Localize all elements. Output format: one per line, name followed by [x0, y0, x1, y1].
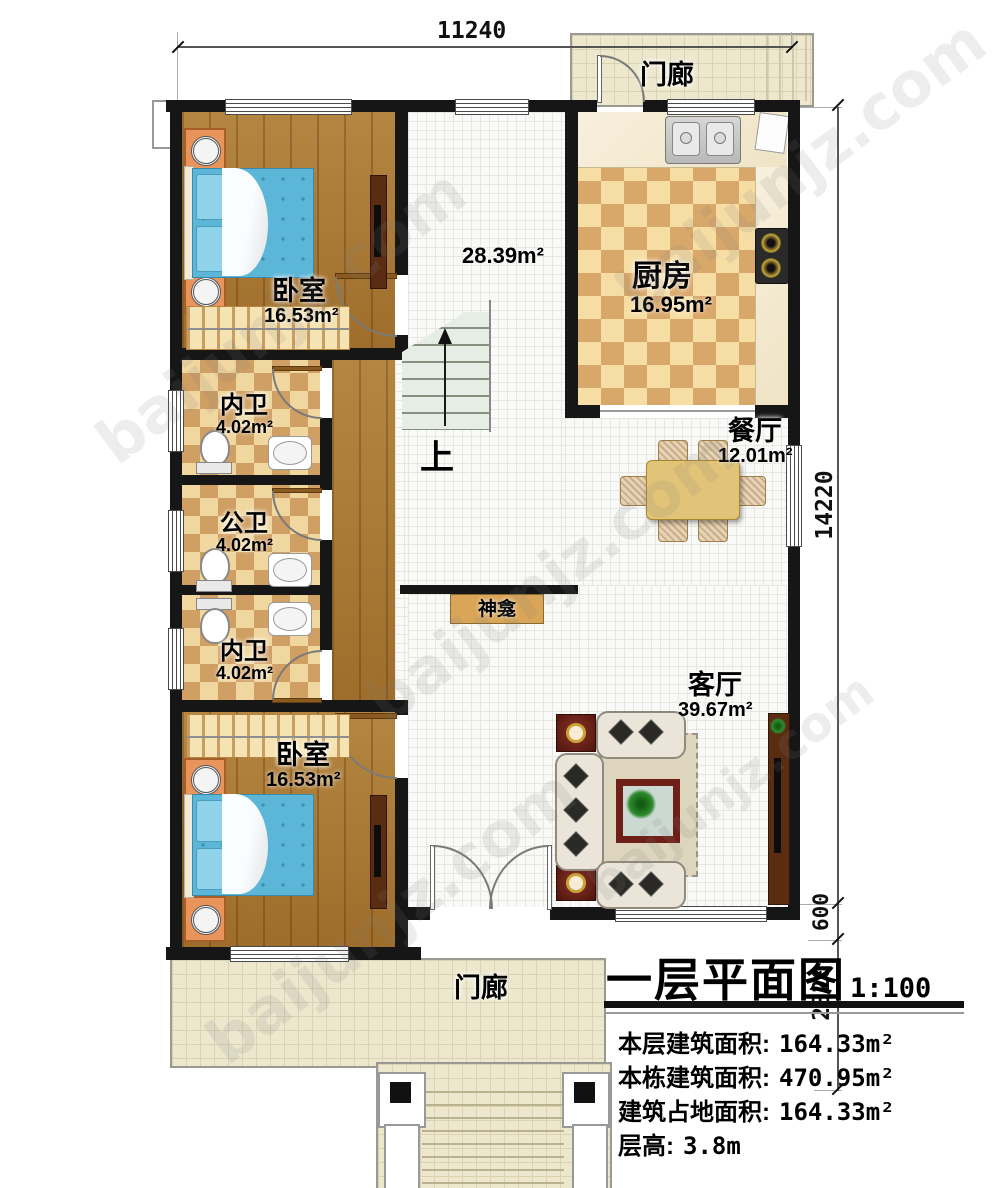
info-label: 本层建筑面积: — [618, 1024, 770, 1059]
entry-column-left-base — [384, 1124, 420, 1188]
wall-segment — [527, 100, 597, 112]
sofa-pillow — [638, 871, 663, 896]
room-label-kitchen: 厨房 — [632, 262, 692, 292]
wall-segment — [320, 540, 332, 650]
wall-segment — [400, 585, 578, 594]
kitchen-corner-unit — [755, 112, 790, 154]
info-value: 3.8m — [683, 1132, 741, 1160]
shrine: 神龛 — [450, 594, 544, 624]
room-area-living: 39.67m² — [678, 700, 753, 720]
toilet-tank — [196, 580, 232, 592]
sofa-pillow — [563, 763, 588, 788]
window — [168, 510, 184, 572]
washbasin-icon — [268, 436, 312, 470]
info-value: 470.95m² — [779, 1064, 895, 1092]
stair-edge — [489, 300, 491, 432]
room-label-bedroom-bottom: 卧室 — [276, 742, 330, 769]
info-value: 164.33m² — [779, 1030, 895, 1058]
burner-icon — [761, 258, 781, 278]
stairs-up-label: 上 — [420, 430, 454, 479]
sofa — [555, 753, 604, 871]
sofa-pillow — [608, 871, 633, 896]
sink-basin-right — [706, 122, 734, 156]
sofa — [596, 861, 686, 909]
lamp-icon — [566, 873, 586, 893]
wall-segment — [643, 100, 667, 112]
bed-pillow — [196, 174, 224, 220]
info-row: 层高: 3.8m — [618, 1126, 741, 1161]
info-label: 建筑占地面积: — [618, 1092, 770, 1127]
room-label-dining: 餐厅 — [728, 418, 782, 445]
wall-segment — [788, 100, 800, 445]
room-label-bath-bottom: 内卫 — [220, 640, 268, 664]
lamp-icon — [566, 723, 586, 743]
info-row: 建筑占地面积: 164.33m² — [618, 1092, 895, 1127]
dining-chair — [736, 476, 766, 506]
kitchen-sink — [665, 116, 741, 164]
wall-segment — [395, 100, 408, 275]
window — [225, 99, 352, 115]
bed-pillow — [196, 848, 224, 890]
window — [667, 99, 755, 115]
info-label: 本栋建筑面积: — [618, 1058, 770, 1093]
toilet-tank — [196, 462, 232, 474]
lamp-icon — [191, 905, 221, 935]
dimension-top-value: 11240 — [437, 18, 506, 44]
burner-icon — [761, 233, 781, 253]
wall-segment — [320, 418, 332, 490]
room-area-bath-bottom: 4.02m² — [216, 664, 273, 682]
washbasin-icon — [268, 553, 312, 587]
end-table — [556, 714, 596, 752]
room-area-kitchen: 16.95m² — [630, 294, 712, 316]
sofa-pillow — [563, 797, 588, 822]
stair-arrow-icon — [438, 328, 452, 344]
lamp-icon — [191, 136, 221, 166]
wall-segment — [550, 907, 615, 920]
dimension-right-value: 14220 — [812, 460, 838, 550]
tv-icon — [774, 758, 781, 853]
entry-column-left-cap — [390, 1082, 411, 1103]
wall-segment — [565, 100, 578, 418]
extension-line — [177, 32, 178, 100]
wall-segment — [408, 907, 430, 920]
room-label-porch-top: 门廊 — [640, 62, 694, 89]
wall-segment — [166, 947, 230, 960]
entry-column-right-cap — [574, 1082, 595, 1103]
window — [168, 628, 184, 690]
lamp-icon — [191, 765, 221, 795]
porch-bottom-floor — [170, 958, 606, 1068]
wall-segment — [170, 570, 182, 628]
tv-icon — [374, 825, 381, 877]
room-area-dining: 12.01m² — [718, 446, 793, 466]
stair-arrow-line — [444, 342, 446, 426]
plant-icon — [626, 789, 656, 819]
room-label-bath-top: 内卫 — [220, 394, 268, 418]
window — [168, 390, 184, 452]
wall-segment — [565, 405, 600, 418]
room-area-hall: 28.39m² — [462, 245, 544, 267]
tv-icon — [374, 205, 381, 257]
sink-basin-left — [672, 122, 700, 156]
info-label: 层高: — [618, 1126, 674, 1161]
room-area-bedroom-top: 16.53m² — [264, 306, 339, 326]
entry-column-right-base — [572, 1124, 608, 1188]
window — [230, 946, 349, 962]
nightstand — [184, 896, 226, 942]
room-label-bedroom-top: 卧室 — [272, 278, 326, 305]
window — [455, 99, 529, 115]
floor-plan: 神龛 上 — [0, 0, 1000, 1188]
info-row: 本层建筑面积: 164.33m² — [618, 1024, 895, 1059]
dimension-600-value: 600 — [809, 877, 833, 947]
info-value: 164.33m² — [779, 1098, 895, 1126]
title-underline — [604, 1001, 964, 1008]
room-area-bedroom-bottom: 16.53m² — [266, 770, 341, 790]
wall-segment — [320, 348, 332, 368]
dimension-line-top — [178, 46, 792, 48]
wall-segment — [347, 947, 421, 960]
sofa-pillow — [638, 719, 663, 744]
info-row: 本栋建筑面积: 470.95m² — [618, 1058, 895, 1093]
room-label-living: 客厅 — [688, 672, 742, 699]
bed-pillow — [196, 800, 224, 842]
wall-segment — [170, 688, 182, 960]
shrine-label: 神龛 — [478, 600, 516, 619]
kitchen-dining-opening — [600, 410, 755, 412]
dining-table — [646, 460, 740, 520]
wall-segment — [170, 100, 182, 390]
title-underline-thin — [604, 1012, 964, 1014]
wall-segment — [170, 475, 320, 485]
sofa — [596, 711, 686, 759]
porch-top-steps — [755, 35, 808, 101]
corridor-floor — [332, 355, 395, 712]
room-label-bath-middle: 公卫 — [220, 512, 268, 536]
plant-icon — [770, 718, 786, 734]
kitchen-counter-right — [755, 167, 788, 405]
room-area-bath-top: 4.02m² — [216, 418, 273, 436]
kitchen-stove — [755, 228, 789, 284]
lamp-icon — [191, 277, 221, 307]
bed-pillow — [196, 226, 224, 272]
room-label-porch-bottom: 门廊 — [454, 975, 508, 1002]
washbasin-icon — [268, 602, 312, 636]
room-area-bath-middle: 4.02m² — [216, 536, 273, 554]
sofa-pillow — [608, 719, 633, 744]
wall-segment — [395, 778, 408, 960]
entry-steps — [422, 1080, 564, 1184]
sofa-pillow — [563, 831, 588, 856]
